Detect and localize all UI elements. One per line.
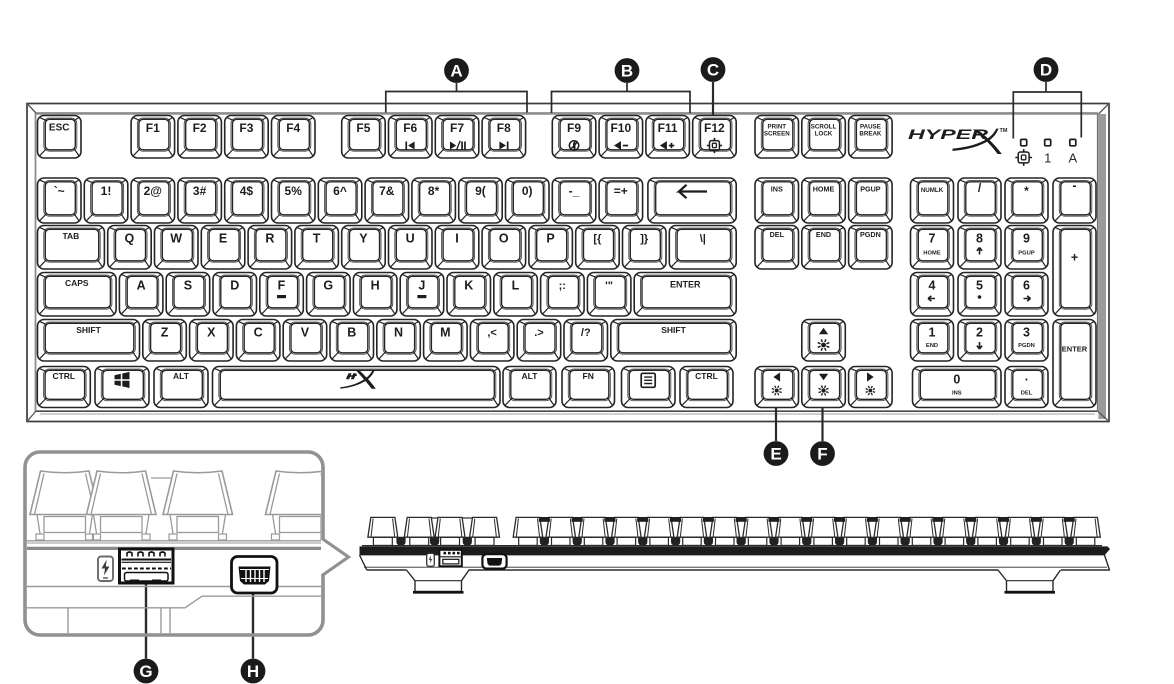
- svg-text:C: C: [254, 326, 263, 340]
- svg-text:ENTER: ENTER: [670, 280, 701, 290]
- svg-text:3#: 3#: [193, 184, 207, 198]
- svg-text:F1: F1: [146, 121, 160, 135]
- svg-text:]}: ]}: [640, 233, 649, 245]
- svg-text:PGDN: PGDN: [860, 230, 881, 239]
- svg-text:1!: 1!: [101, 184, 112, 198]
- svg-text:Q: Q: [125, 232, 135, 246]
- svg-text:/?: /?: [581, 327, 591, 339]
- svg-text:LOCK: LOCK: [815, 131, 833, 138]
- svg-text:.>: .>: [534, 327, 543, 339]
- svg-text:A: A: [450, 62, 462, 81]
- svg-text:E: E: [770, 445, 781, 464]
- svg-text:L: L: [512, 279, 520, 293]
- svg-text:-: -: [1072, 179, 1076, 193]
- svg-text:Y: Y: [359, 232, 368, 246]
- svg-text:END: END: [926, 343, 938, 349]
- svg-text:F2: F2: [193, 121, 207, 135]
- svg-text:X: X: [207, 326, 216, 340]
- svg-text:F10: F10: [610, 121, 631, 135]
- svg-text:BREAK: BREAK: [859, 131, 882, 138]
- svg-text:5%: 5%: [285, 184, 303, 198]
- svg-text:CTRL: CTRL: [695, 371, 718, 381]
- svg-text:F: F: [278, 279, 286, 293]
- svg-text:D: D: [230, 279, 239, 293]
- svg-text:J: J: [418, 279, 425, 293]
- svg-text:CAPS: CAPS: [65, 278, 89, 288]
- svg-text:HOME: HOME: [923, 251, 941, 257]
- svg-text:PRINT: PRINT: [768, 124, 787, 131]
- svg-text:M: M: [440, 326, 450, 340]
- svg-text:5: 5: [976, 279, 983, 293]
- svg-text:A: A: [1068, 151, 1077, 166]
- svg-text:1: 1: [929, 326, 936, 340]
- svg-text:9(: 9(: [475, 184, 486, 198]
- svg-text:DEL: DEL: [770, 230, 785, 239]
- svg-text:G: G: [139, 662, 152, 681]
- svg-text:G: G: [323, 279, 333, 293]
- svg-text:ALT: ALT: [522, 371, 539, 381]
- svg-text:N: N: [394, 326, 403, 340]
- svg-text:`~: `~: [54, 184, 65, 198]
- svg-text:FN: FN: [583, 371, 594, 381]
- svg-text:PAUSE: PAUSE: [860, 124, 881, 131]
- svg-text:9: 9: [1023, 232, 1030, 246]
- svg-text:SHIFT: SHIFT: [661, 325, 686, 335]
- svg-text:Z: Z: [161, 326, 169, 340]
- svg-text:SCROLL: SCROLL: [811, 124, 837, 131]
- svg-text:F: F: [817, 445, 827, 464]
- svg-text:CTRL: CTRL: [52, 371, 75, 381]
- svg-text:8: 8: [976, 232, 983, 246]
- svg-text:F3: F3: [239, 121, 253, 135]
- svg-text:A: A: [137, 279, 146, 293]
- svg-text:F4: F4: [286, 121, 300, 135]
- svg-text:HOME: HOME: [813, 185, 835, 194]
- svg-text:6: 6: [1023, 279, 1030, 293]
- svg-text:W: W: [170, 232, 182, 246]
- svg-text:.: .: [1025, 370, 1028, 384]
- svg-text:4: 4: [929, 279, 936, 293]
- svg-text:INS: INS: [952, 391, 962, 397]
- svg-text:F5: F5: [356, 121, 370, 135]
- svg-text:\|: \|: [700, 233, 706, 245]
- svg-text:ESC: ESC: [49, 123, 70, 134]
- svg-text:PGUP: PGUP: [860, 185, 881, 194]
- svg-text:INS: INS: [771, 185, 783, 194]
- svg-text:2@: 2@: [144, 184, 162, 198]
- svg-text:H: H: [371, 279, 380, 293]
- svg-text:END: END: [816, 230, 831, 239]
- svg-text:V: V: [301, 326, 310, 340]
- svg-text:-_: -_: [569, 184, 580, 198]
- svg-text:E: E: [219, 232, 227, 246]
- svg-text:S: S: [184, 279, 192, 293]
- svg-text:C: C: [707, 61, 719, 80]
- svg-text:F11: F11: [658, 121, 678, 135]
- svg-text:1: 1: [1044, 151, 1051, 166]
- svg-text:F8: F8: [497, 121, 511, 135]
- svg-text:'": '": [605, 280, 613, 292]
- svg-text:H: H: [247, 662, 259, 681]
- svg-text:I: I: [455, 232, 458, 246]
- svg-text:O: O: [499, 232, 509, 246]
- svg-text:F6: F6: [403, 121, 417, 135]
- svg-text:B: B: [347, 326, 356, 340]
- svg-text:,<: ,<: [487, 327, 496, 339]
- svg-text:R: R: [265, 232, 274, 246]
- svg-text:HYPER: HYPER: [908, 126, 989, 142]
- svg-text:[{: [{: [593, 233, 602, 245]
- svg-text:D: D: [1040, 61, 1052, 80]
- svg-text:NUMLK: NUMLK: [921, 187, 944, 194]
- svg-text:4$: 4$: [240, 184, 254, 198]
- svg-text:P: P: [546, 232, 554, 246]
- svg-text:K: K: [464, 279, 473, 293]
- svg-text:U: U: [406, 232, 415, 246]
- svg-text:SHIFT: SHIFT: [76, 325, 101, 335]
- svg-text:+: +: [1071, 251, 1078, 265]
- svg-text:DEL: DEL: [1021, 391, 1033, 397]
- svg-text:B: B: [621, 62, 633, 81]
- svg-text:7: 7: [929, 232, 936, 246]
- svg-text:ALT: ALT: [173, 371, 190, 381]
- svg-text:PGDN: PGDN: [1018, 343, 1035, 349]
- svg-text:0): 0): [522, 184, 533, 198]
- svg-text:0: 0: [953, 373, 960, 387]
- svg-text:T: T: [313, 232, 321, 246]
- svg-text:8*: 8*: [428, 184, 440, 198]
- svg-text:2: 2: [976, 326, 983, 340]
- svg-text:F9: F9: [567, 121, 581, 135]
- svg-text:PGUP: PGUP: [1018, 251, 1035, 257]
- svg-text:3: 3: [1023, 326, 1030, 340]
- svg-text:=+: =+: [614, 184, 628, 198]
- svg-text:6^: 6^: [333, 184, 347, 198]
- svg-text:TM: TM: [1000, 128, 1008, 134]
- svg-text:F12: F12: [704, 121, 725, 135]
- svg-text:ENTER: ENTER: [1062, 345, 1088, 354]
- svg-text:*: *: [1024, 184, 1029, 198]
- svg-text:7&: 7&: [379, 184, 395, 198]
- svg-text:TAB: TAB: [62, 231, 79, 241]
- svg-text:F7: F7: [450, 121, 464, 135]
- svg-text:;:: ;:: [559, 280, 566, 292]
- svg-text:SCREEN: SCREEN: [764, 131, 790, 138]
